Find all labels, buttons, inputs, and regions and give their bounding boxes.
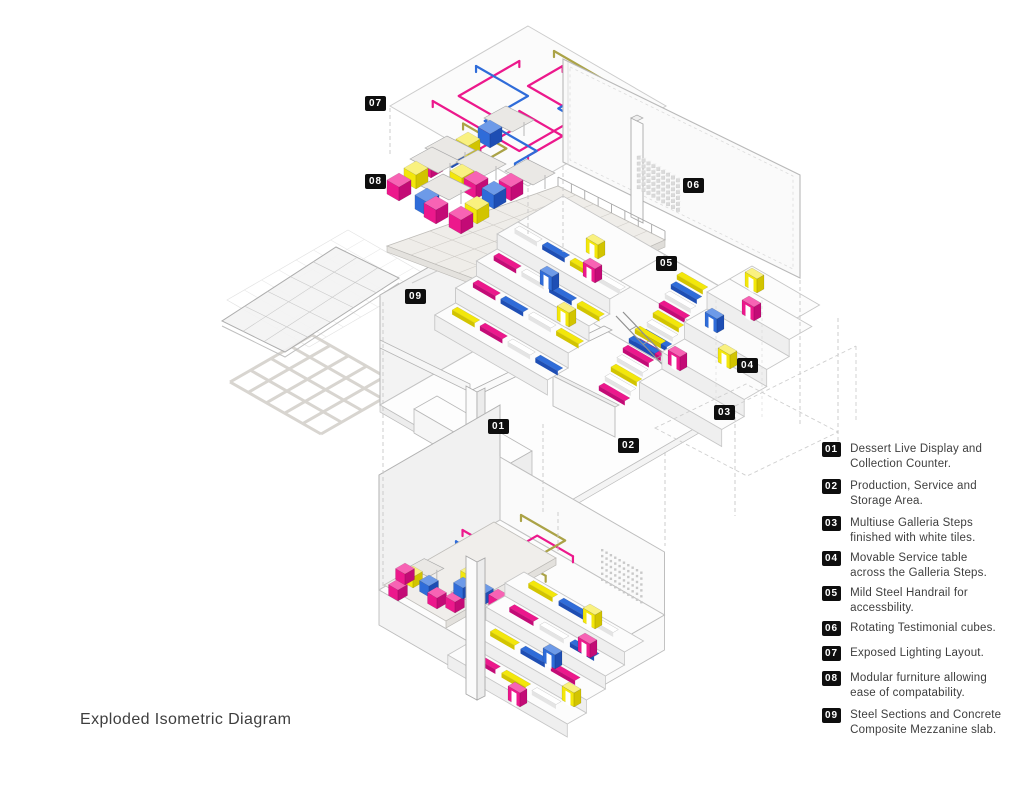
diagram-tag-06: 06: [683, 178, 704, 193]
legend-item-05: 05Mild Steel Handrail for accessbility.: [822, 586, 968, 616]
legend-item-01: 01Dessert Live Display and Collection Co…: [822, 442, 982, 472]
legend-tag-03: 03: [822, 516, 841, 531]
diagram-tag-08: 08: [365, 174, 386, 189]
drawing-title: Exploded Isometric Diagram: [80, 711, 291, 729]
legend-text-05: Mild Steel Handrail for accessbility.: [850, 586, 968, 616]
legend-tag-07: 07: [822, 646, 841, 661]
legend-tag-09: 09: [822, 708, 841, 723]
legend: 01Dessert Live Display and Collection Co…: [822, 440, 1024, 750]
exploded-isometric-diagram: 010203040506070809 01Dessert Live Displa…: [0, 0, 1024, 812]
legend-text-09: Steel Sections and Concrete Composite Me…: [850, 708, 1001, 738]
legend-text-03: Multiuse Galleria Steps finished with wh…: [850, 516, 975, 546]
legend-text-06: Rotating Testimonial cubes.: [850, 621, 996, 636]
diagram-tag-04: 04: [737, 358, 758, 373]
diagram-tag-02: 02: [618, 438, 639, 453]
legend-item-09: 09Steel Sections and Concrete Composite …: [822, 708, 1001, 738]
legend-tag-05: 05: [822, 586, 841, 601]
diagram-tag-03: 03: [714, 405, 735, 420]
diagram-tag-09: 09: [405, 289, 426, 304]
legend-item-03: 03Multiuse Galleria Steps finished with …: [822, 516, 976, 546]
legend-tag-08: 08: [822, 671, 841, 686]
legend-text-02: Production, Service and Storage Area.: [850, 479, 977, 509]
legend-text-08: Modular furniture allowing ease of compa…: [850, 671, 987, 701]
legend-item-08: 08Modular furniture allowing ease of com…: [822, 671, 987, 701]
diagram-tag-07: 07: [365, 96, 386, 111]
legend-text-01: Dessert Live Display and Collection Coun…: [850, 442, 982, 472]
diagram-tag-05: 05: [656, 256, 677, 271]
legend-text-07: Exposed Lighting Layout.: [850, 646, 984, 661]
legend-text-04: Movable Service table across the Galleri…: [850, 551, 987, 581]
legend-tag-02: 02: [822, 479, 841, 494]
legend-item-07: 07Exposed Lighting Layout.: [822, 646, 984, 661]
legend-tag-04: 04: [822, 551, 841, 566]
legend-item-02: 02Production, Service and Storage Area.: [822, 479, 977, 509]
legend-tag-01: 01: [822, 442, 841, 457]
legend-tag-06: 06: [822, 621, 841, 636]
diagram-tag-01: 01: [488, 419, 509, 434]
legend-item-06: 06Rotating Testimonial cubes.: [822, 621, 996, 636]
legend-item-04: 04Movable Service table across the Galle…: [822, 551, 987, 581]
